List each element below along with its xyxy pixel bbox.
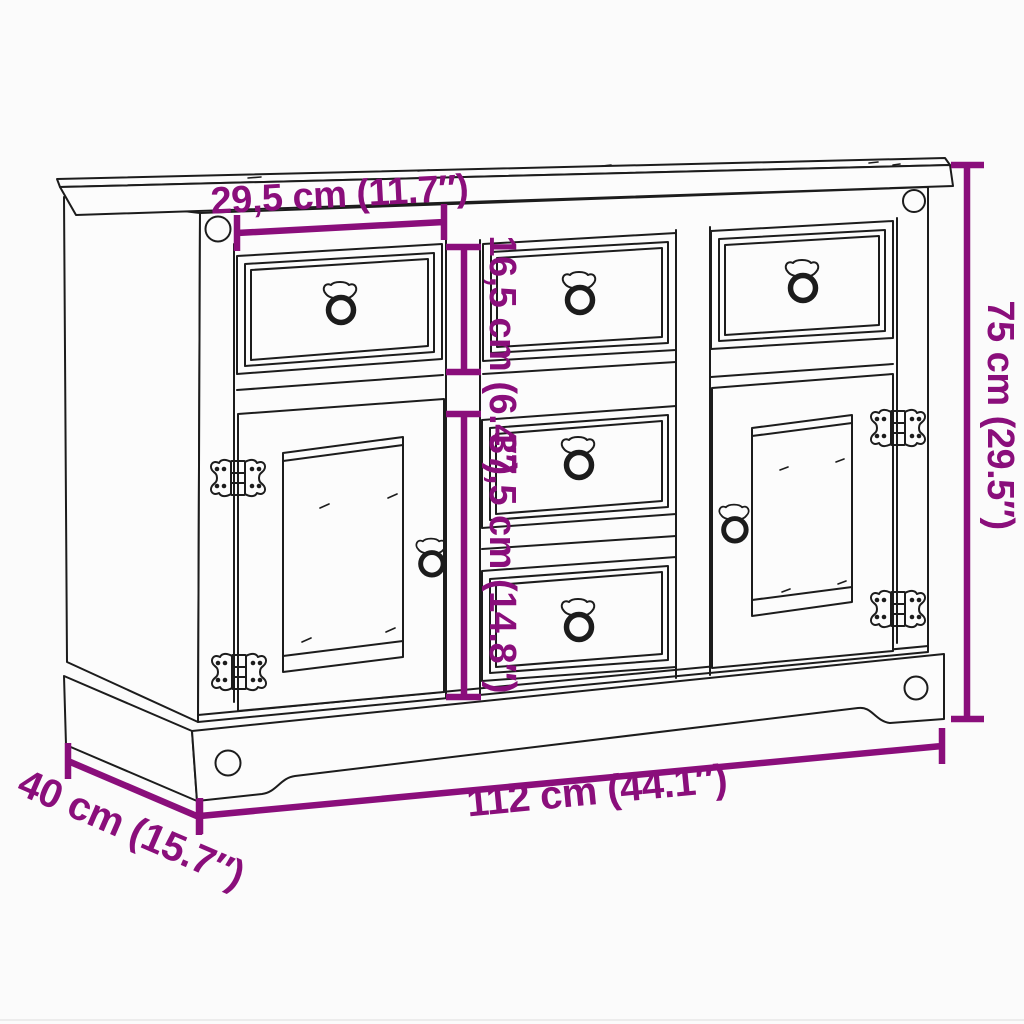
door-left	[211, 399, 446, 711]
dimension-label-total-height: 75 cm (29.5″)	[979, 300, 1021, 529]
dimension-label-total-width: 112 cm (44.1″)	[465, 757, 729, 826]
side-panel	[64, 197, 200, 722]
canvas-bottom-edge	[0, 1019, 1024, 1021]
product-dimension-diagram: 29,5 cm (11.7″) 16,5 cm (6.4″) 37,5 cm (…	[0, 0, 1024, 1024]
dimension-total-height: 75 cm (29.5″)	[951, 165, 1021, 719]
door-right	[712, 374, 925, 668]
sideboard-line-drawing: 29,5 cm (11.7″) 16,5 cm (6.4″) 37,5 cm (…	[0, 0, 1024, 1024]
drawer-top-right	[711, 221, 893, 349]
dimension-label-middle-drawers-height: 37,5 cm (14.8″)	[481, 433, 523, 693]
drawer-top-left	[237, 244, 442, 374]
